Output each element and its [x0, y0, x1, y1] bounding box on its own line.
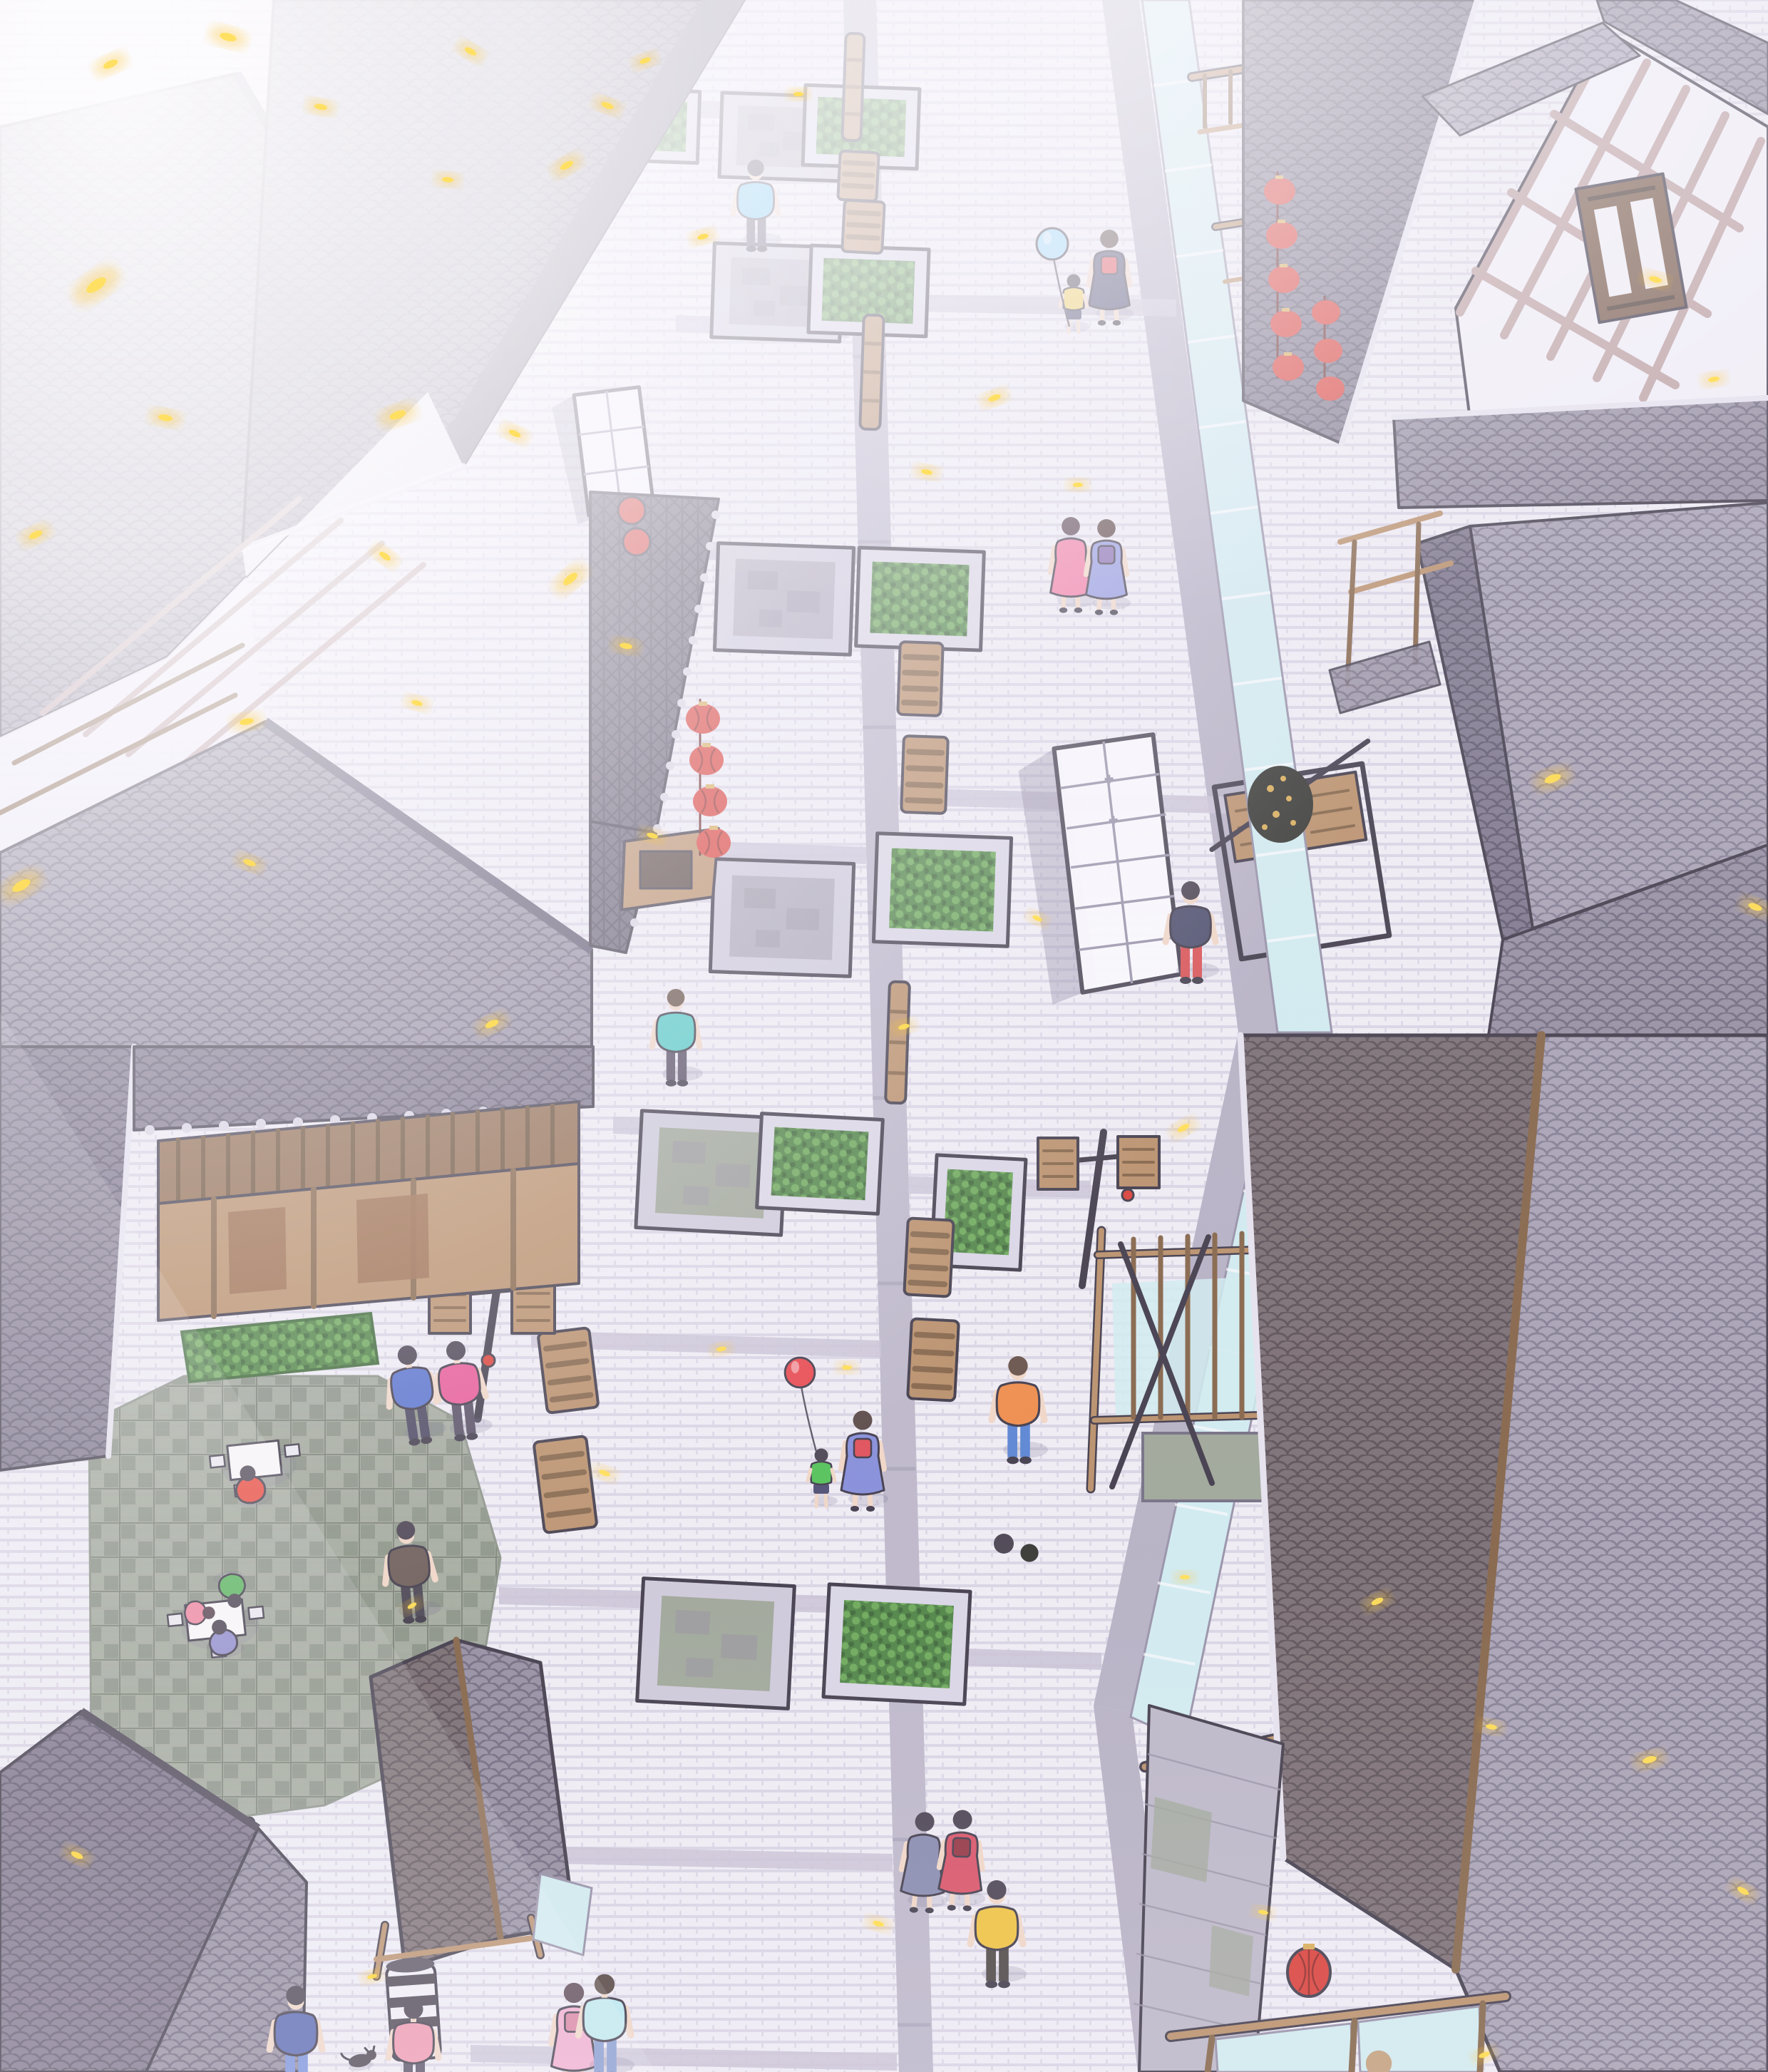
scene-canvas [0, 0, 1768, 2072]
spark [787, 88, 810, 101]
atmosphere [0, 0, 1768, 2072]
spark [1067, 479, 1089, 491]
spark [1173, 1571, 1196, 1584]
spark [836, 1362, 858, 1374]
lavender-tint [0, 0, 1768, 2072]
aerial-street-scene [0, 0, 1768, 2072]
